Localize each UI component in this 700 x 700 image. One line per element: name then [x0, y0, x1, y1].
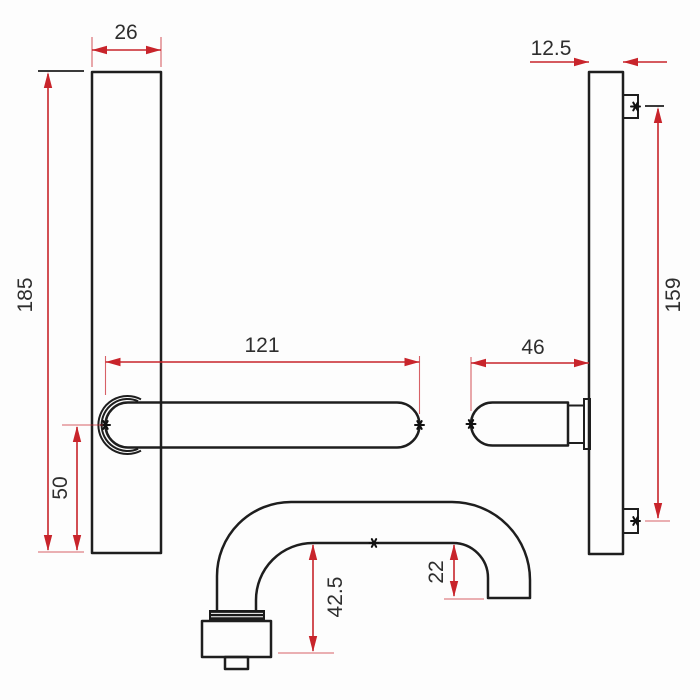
dimension-handle-centre: 50: [49, 425, 103, 551]
dim-label-lever-length: 121: [244, 334, 279, 357]
dimension-plate-thickness: 12.5: [530, 37, 667, 66]
front-lever: [106, 403, 420, 448]
top-view-spindle: [225, 657, 248, 669]
dim-label-plate-height: 185: [14, 277, 37, 312]
top-view-collar: [209, 610, 265, 621]
side-lever-neck-ring: [568, 406, 584, 444]
dim-label-fixing-centres: 159: [662, 277, 685, 312]
dimension-handle-projection: 42.5: [278, 544, 347, 653]
dimension-plate-width: 26: [92, 21, 161, 67]
dim-label-plate-thickness: 12.5: [531, 37, 572, 60]
side-lever-flange: [584, 399, 590, 449]
front-view: [92, 72, 424, 553]
dim-label-grip-clearance: 22: [425, 560, 448, 583]
dimension-fixing-centres: 159: [645, 106, 685, 521]
side-backplate: [589, 72, 623, 554]
dim-label-lever-projection: 46: [521, 336, 544, 359]
dimension-lever-projection: 46: [471, 336, 589, 411]
top-view-handle-outline: [217, 502, 530, 610]
side-lever-grip: [471, 403, 568, 446]
side-view: [467, 72, 641, 554]
dim-label-plate-width: 26: [114, 21, 137, 44]
front-backplate: [92, 72, 161, 553]
technical-drawing-canvas: 26 185 50 121 12.5: [0, 0, 700, 700]
reference-marker-icon: [370, 539, 379, 547]
dim-label-handle-projection: 42.5: [324, 577, 347, 618]
dim-label-handle-centre: 50: [49, 476, 72, 499]
drawing-svg: 26 185 50 121 12.5: [0, 0, 700, 700]
top-view-rose: [202, 621, 271, 657]
top-view: [202, 502, 530, 669]
